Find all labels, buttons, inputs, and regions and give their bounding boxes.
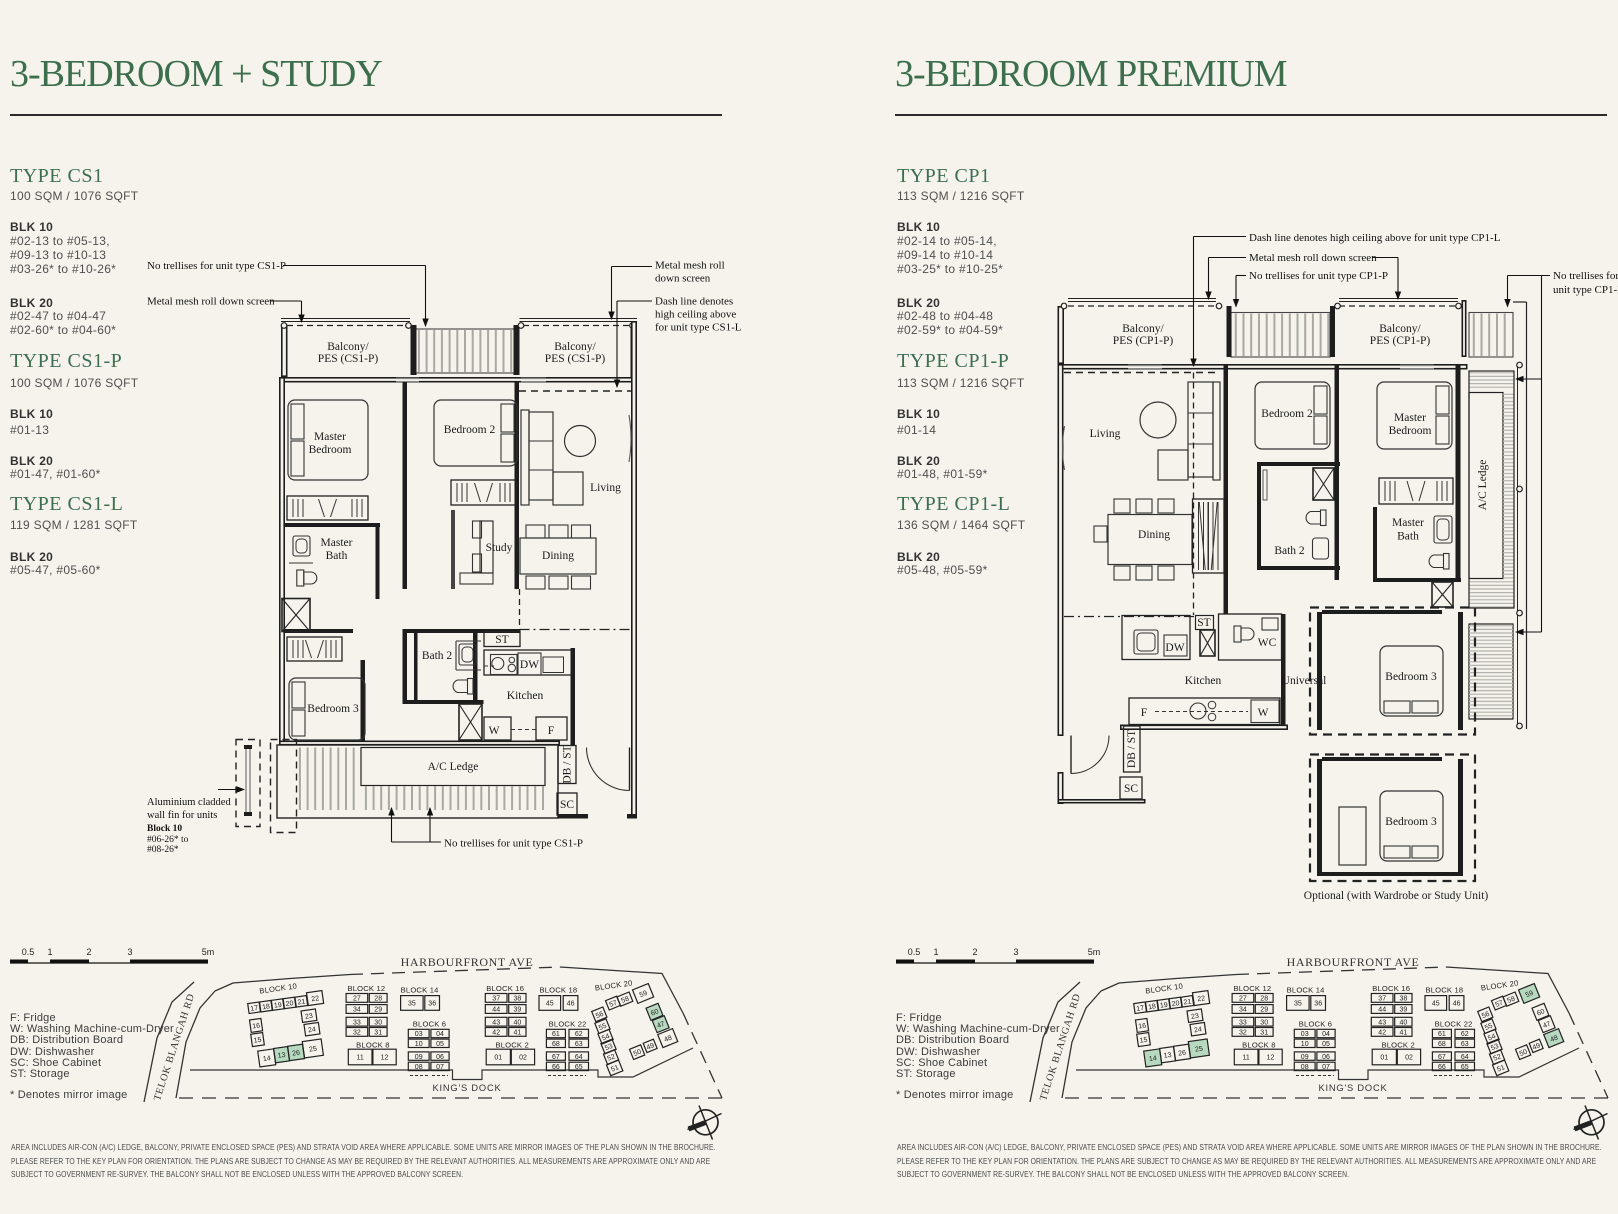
svg-text:47: 47 — [1542, 1021, 1552, 1030]
svg-text:KING'S DOCK: KING'S DOCK — [433, 1083, 502, 1093]
svg-text:01: 01 — [1380, 1055, 1388, 1062]
svg-text:21: 21 — [1183, 999, 1192, 1007]
svg-text:61: 61 — [1438, 1031, 1446, 1038]
svg-text:BLOCK 2: BLOCK 2 — [495, 1040, 528, 1049]
svg-text:15: 15 — [1139, 1037, 1148, 1045]
svg-text:16: 16 — [1138, 1022, 1147, 1030]
svg-text:BLOCK 8: BLOCK 8 — [356, 1040, 389, 1049]
svg-text:02: 02 — [519, 1055, 527, 1062]
svg-text:BLOCK 8: BLOCK 8 — [1242, 1040, 1275, 1049]
svg-text:64: 64 — [575, 1054, 583, 1061]
svg-text:13: 13 — [277, 1052, 286, 1060]
svg-text:08: 08 — [415, 1064, 423, 1071]
svg-text:1: 1 — [933, 947, 938, 957]
svg-text:BLOCK 14: BLOCK 14 — [1287, 986, 1325, 995]
svg-text:62: 62 — [575, 1031, 583, 1038]
svg-text:25: 25 — [309, 1046, 318, 1054]
svg-text:42: 42 — [492, 1030, 500, 1037]
svg-text:64: 64 — [1461, 1054, 1469, 1061]
svg-text:26: 26 — [292, 1050, 301, 1058]
svg-text:13: 13 — [1163, 1052, 1172, 1060]
svg-text:41: 41 — [1400, 1030, 1408, 1037]
svg-text:22: 22 — [311, 995, 320, 1003]
svg-text:BLOCK 22: BLOCK 22 — [1435, 1020, 1473, 1029]
svg-text:HARBOURFRONT AVE: HARBOURFRONT AVE — [401, 955, 534, 969]
svg-text:48: 48 — [663, 1034, 673, 1043]
svg-text:12: 12 — [381, 1055, 389, 1062]
svg-text:45: 45 — [1432, 1001, 1440, 1008]
svg-text:09: 09 — [1301, 1054, 1309, 1061]
svg-text:59: 59 — [639, 990, 649, 999]
svg-text:14: 14 — [1149, 1055, 1158, 1063]
svg-text:29: 29 — [1260, 1007, 1268, 1014]
svg-text:17: 17 — [250, 1005, 259, 1013]
svg-text:24: 24 — [308, 1026, 317, 1034]
svg-text:0.5: 0.5 — [908, 947, 921, 957]
svg-text:21: 21 — [297, 999, 306, 1007]
svg-text:42: 42 — [1378, 1030, 1386, 1037]
svg-text:3: 3 — [1013, 947, 1018, 957]
svg-text:35: 35 — [408, 1001, 416, 1008]
svg-text:29: 29 — [374, 1007, 382, 1014]
svg-text:33: 33 — [1239, 1019, 1247, 1026]
svg-text:2: 2 — [972, 947, 977, 957]
svg-text:KING'S DOCK: KING'S DOCK — [1319, 1083, 1388, 1093]
svg-text:06: 06 — [436, 1054, 444, 1061]
svg-text:37: 37 — [1378, 996, 1386, 1003]
svg-text:BLOCK 20: BLOCK 20 — [1480, 978, 1519, 992]
svg-text:28: 28 — [374, 996, 382, 1003]
svg-text:BLOCK 10: BLOCK 10 — [259, 981, 298, 995]
svg-text:41: 41 — [514, 1030, 522, 1037]
svg-text:16: 16 — [252, 1022, 261, 1030]
svg-text:30: 30 — [1260, 1019, 1268, 1026]
svg-text:40: 40 — [514, 1019, 522, 1026]
svg-text:BLOCK 12: BLOCK 12 — [1233, 984, 1271, 993]
svg-text:19: 19 — [1160, 1002, 1169, 1010]
svg-text:38: 38 — [514, 996, 522, 1003]
svg-text:22: 22 — [1197, 995, 1206, 1003]
svg-text:1: 1 — [47, 947, 52, 957]
svg-text:43: 43 — [492, 1019, 500, 1026]
svg-text:BLOCK 18: BLOCK 18 — [539, 986, 577, 995]
svg-text:68: 68 — [552, 1041, 560, 1048]
svg-text:17: 17 — [1136, 1005, 1145, 1013]
svg-text:30: 30 — [374, 1019, 382, 1026]
svg-text:5m: 5m — [1088, 947, 1101, 957]
svg-text:BLOCK 2: BLOCK 2 — [1381, 1040, 1414, 1049]
svg-text:2: 2 — [86, 947, 91, 957]
svg-text:05: 05 — [436, 1041, 444, 1048]
svg-text:01: 01 — [494, 1055, 502, 1062]
svg-text:27: 27 — [353, 996, 361, 1003]
svg-text:46: 46 — [1453, 1001, 1461, 1008]
svg-text:37: 37 — [492, 996, 500, 1003]
svg-text:34: 34 — [1239, 1007, 1247, 1014]
svg-text:12: 12 — [1267, 1055, 1275, 1062]
svg-text:28: 28 — [1260, 996, 1268, 1003]
svg-text:62: 62 — [1461, 1031, 1469, 1038]
svg-text:06: 06 — [1322, 1054, 1330, 1061]
svg-text:BLOCK 16: BLOCK 16 — [486, 984, 524, 993]
svg-text:11: 11 — [357, 1055, 364, 1062]
svg-text:67: 67 — [552, 1054, 560, 1061]
svg-text:61: 61 — [552, 1031, 560, 1038]
svg-text:5m: 5m — [202, 947, 215, 957]
svg-text:BLOCK 16: BLOCK 16 — [1372, 984, 1410, 993]
svg-text:19: 19 — [274, 1002, 283, 1010]
svg-text:46: 46 — [567, 1001, 575, 1008]
svg-text:14: 14 — [263, 1055, 272, 1063]
svg-text:BLOCK 20: BLOCK 20 — [594, 978, 633, 992]
svg-text:39: 39 — [514, 1007, 522, 1014]
svg-text:05: 05 — [1322, 1041, 1330, 1048]
svg-text:25: 25 — [1195, 1046, 1204, 1054]
svg-text:BLOCK 12: BLOCK 12 — [347, 984, 385, 993]
svg-text:24: 24 — [1194, 1026, 1203, 1034]
svg-text:36: 36 — [1314, 1001, 1322, 1008]
svg-text:44: 44 — [492, 1007, 500, 1014]
svg-text:26: 26 — [1178, 1050, 1187, 1058]
svg-text:10: 10 — [1301, 1041, 1309, 1048]
svg-text:10: 10 — [415, 1041, 423, 1048]
svg-text:02: 02 — [1405, 1055, 1413, 1062]
svg-text:20: 20 — [1171, 1000, 1180, 1008]
svg-text:43: 43 — [1378, 1019, 1386, 1026]
svg-text:40: 40 — [1400, 1019, 1408, 1026]
svg-text:66: 66 — [552, 1064, 560, 1071]
svg-text:67: 67 — [1438, 1054, 1446, 1061]
svg-text:BLOCK 10: BLOCK 10 — [1145, 981, 1184, 995]
svg-text:31: 31 — [1260, 1030, 1268, 1037]
svg-text:60: 60 — [1536, 1008, 1546, 1017]
svg-text:03: 03 — [415, 1031, 423, 1038]
svg-text:07: 07 — [1322, 1064, 1330, 1071]
svg-text:HARBOURFRONT AVE: HARBOURFRONT AVE — [1287, 955, 1420, 969]
svg-text:20: 20 — [285, 1000, 294, 1008]
svg-text:66: 66 — [1438, 1064, 1446, 1071]
svg-text:BLOCK 14: BLOCK 14 — [401, 986, 439, 995]
svg-text:BLOCK 22: BLOCK 22 — [549, 1020, 587, 1029]
svg-text:18: 18 — [262, 1003, 271, 1011]
svg-text:27: 27 — [1239, 996, 1247, 1003]
svg-text:07: 07 — [436, 1064, 444, 1071]
svg-text:11: 11 — [1243, 1055, 1250, 1062]
svg-text:44: 44 — [1378, 1007, 1386, 1014]
svg-text:45: 45 — [546, 1001, 554, 1008]
svg-text:23: 23 — [305, 1013, 314, 1021]
svg-text:15: 15 — [253, 1037, 262, 1045]
svg-text:23: 23 — [1191, 1013, 1200, 1021]
svg-text:04: 04 — [1322, 1031, 1330, 1038]
svg-text:68: 68 — [1438, 1041, 1446, 1048]
svg-text:35: 35 — [1294, 1001, 1302, 1008]
svg-text:65: 65 — [1461, 1064, 1469, 1071]
svg-text:BLOCK 6: BLOCK 6 — [1299, 1020, 1332, 1029]
svg-text:36: 36 — [428, 1001, 436, 1008]
svg-text:33: 33 — [353, 1019, 361, 1026]
svg-text:63: 63 — [575, 1041, 583, 1048]
svg-text:32: 32 — [1239, 1030, 1247, 1037]
svg-text:3: 3 — [127, 947, 132, 957]
svg-text:BLOCK 6: BLOCK 6 — [413, 1020, 446, 1029]
svg-text:32: 32 — [353, 1030, 361, 1037]
svg-text:08: 08 — [1301, 1064, 1309, 1071]
svg-text:18: 18 — [1148, 1003, 1157, 1011]
svg-text:38: 38 — [1400, 996, 1408, 1003]
svg-text:0.5: 0.5 — [22, 947, 35, 957]
svg-text:34: 34 — [353, 1007, 361, 1014]
svg-text:31: 31 — [374, 1030, 382, 1037]
svg-text:39: 39 — [1400, 1007, 1408, 1014]
svg-text:BLOCK 18: BLOCK 18 — [1425, 986, 1463, 995]
svg-text:03: 03 — [1301, 1031, 1309, 1038]
svg-text:04: 04 — [436, 1031, 444, 1038]
svg-text:65: 65 — [575, 1064, 583, 1071]
svg-text:09: 09 — [415, 1054, 423, 1061]
svg-text:63: 63 — [1461, 1041, 1469, 1048]
